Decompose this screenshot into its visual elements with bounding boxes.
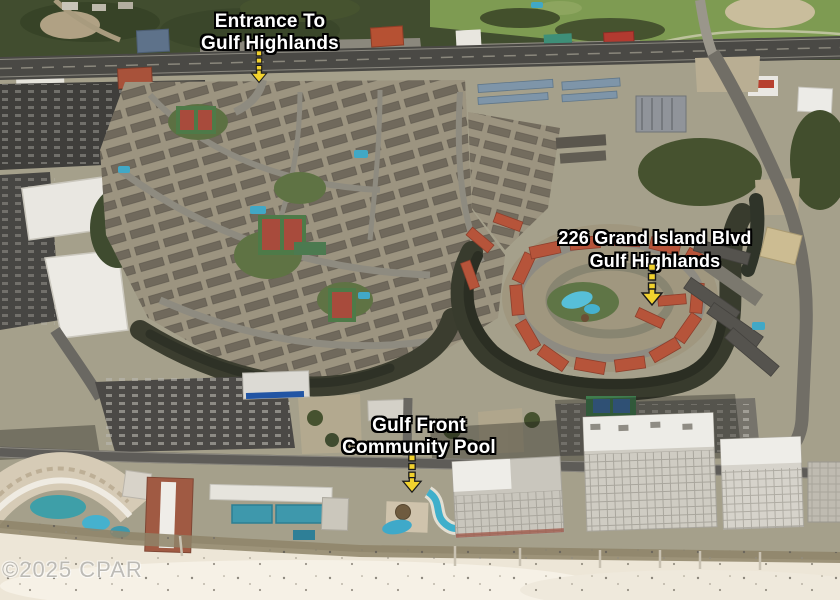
label-entrance-line2: Gulf Highlands: [190, 33, 350, 55]
label-entrance-line1: Entrance To: [190, 11, 350, 33]
label-entrance: Entrance To Gulf Highlands: [190, 11, 350, 55]
aerial-map: Entrance To Gulf Highlands 226 Grand Isl…: [0, 0, 840, 600]
dashed-arrow-down-icon: [248, 50, 270, 84]
copyright-watermark: ©2025 CPAR: [2, 557, 143, 583]
label-property-line1: 226 Grand Island Blvd: [540, 227, 770, 250]
aerial-photo: [0, 0, 840, 600]
dashed-arrow-down-icon: [399, 454, 425, 494]
dashed-arrow-down-icon: [638, 263, 666, 307]
label-community-pool-line1: Gulf Front: [339, 415, 499, 437]
label-community-pool: Gulf Front Community Pool: [339, 415, 499, 459]
